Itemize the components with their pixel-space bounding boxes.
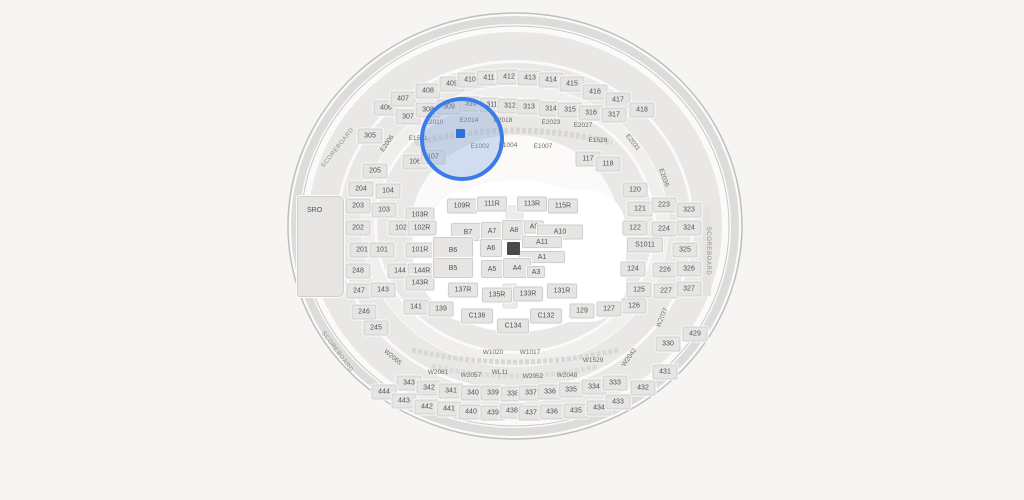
section-137r[interactable]: 137R — [448, 283, 478, 298]
section-205[interactable]: 205 — [363, 164, 388, 179]
section-227[interactable]: 227 — [654, 284, 679, 299]
section-204[interactable]: 204 — [349, 182, 374, 197]
section-120[interactable]: 120 — [623, 183, 648, 198]
section-435[interactable]: 435 — [564, 404, 589, 419]
seat-map[interactable]: SRO 406407408409410411412413414415416417… — [0, 0, 1024, 500]
scoreboard-label: SCOREBOARD — [705, 227, 711, 276]
section-127[interactable]: 127 — [597, 302, 622, 317]
section-325[interactable]: 325 — [673, 243, 698, 258]
section-118[interactable]: 118 — [596, 157, 621, 172]
section-b5[interactable]: B5 — [433, 258, 473, 278]
section-113r[interactable]: 113R — [517, 197, 547, 212]
section-121[interactable]: 121 — [628, 202, 653, 217]
aisle-label-w2057: W2057 — [461, 373, 482, 380]
aisle-label-e1007: E1007 — [534, 144, 553, 151]
section-139[interactable]: 139 — [429, 302, 454, 317]
section-124[interactable]: 124 — [621, 262, 646, 277]
section-416[interactable]: 416 — [583, 85, 608, 100]
section-333[interactable]: 333 — [603, 376, 628, 391]
section-a6[interactable]: A6 — [480, 239, 502, 257]
section-135r[interactable]: 135R — [482, 288, 512, 303]
aisle-label-w2061: W2061 — [428, 370, 449, 377]
section-143r[interactable]: 143R — [406, 276, 435, 291]
section-c132[interactable]: C132 — [530, 309, 562, 324]
section-104[interactable]: 104 — [376, 184, 401, 199]
section-101r[interactable]: 101R — [406, 243, 435, 258]
aisle-label-wl11: WL11 — [492, 370, 509, 377]
section-143[interactable]: 143 — [371, 283, 396, 298]
section-a3[interactable]: A3 — [527, 266, 545, 278]
aisle-label-w1529: W1529 — [583, 358, 604, 365]
aisle-label-e1528: E1528 — [589, 138, 608, 145]
section-324[interactable]: 324 — [677, 221, 702, 236]
aisle-label-e2027: E2027 — [574, 123, 593, 130]
section-246[interactable]: 246 — [352, 305, 377, 320]
section-408[interactable]: 408 — [416, 84, 441, 99]
aisle-label-w2048: W2048 — [557, 373, 578, 380]
section-129[interactable]: 129 — [570, 304, 595, 319]
section-317[interactable]: 317 — [602, 108, 627, 123]
section-s1011[interactable]: S1011 — [627, 238, 663, 253]
section-126[interactable]: 126 — [622, 299, 647, 314]
section-122[interactable]: 122 — [623, 221, 648, 236]
section-305[interactable]: 305 — [358, 129, 383, 144]
section-429[interactable]: 429 — [683, 327, 708, 342]
section-a7[interactable]: A7 — [481, 222, 503, 240]
section-131r[interactable]: 131R — [547, 284, 577, 299]
section-111r[interactable]: 111R — [477, 197, 507, 212]
section-c136[interactable]: C136 — [461, 309, 493, 324]
section-202[interactable]: 202 — [346, 221, 371, 236]
section-418[interactable]: 418 — [630, 103, 655, 118]
section-247[interactable]: 247 — [347, 284, 372, 299]
section-103[interactable]: 103 — [372, 203, 397, 218]
section-sro[interactable]: SRO — [297, 196, 344, 297]
section-316[interactable]: 316 — [579, 106, 604, 121]
section-407[interactable]: 407 — [391, 92, 416, 107]
aisle-label-e2023: E2023 — [542, 120, 561, 127]
section-133r[interactable]: 133R — [513, 287, 543, 302]
section-115r[interactable]: 115R — [548, 199, 578, 214]
section-203[interactable]: 203 — [346, 199, 371, 214]
section-323[interactable]: 323 — [677, 203, 702, 218]
section-101[interactable]: 101 — [370, 243, 395, 258]
section-415[interactable]: 415 — [560, 77, 585, 92]
section-443[interactable]: 443 — [392, 394, 417, 409]
section-102r[interactable]: 102R — [408, 221, 437, 236]
selected-seat-marker[interactable] — [456, 129, 465, 138]
section-223[interactable]: 223 — [652, 198, 677, 213]
stage — [507, 242, 520, 255]
section-330[interactable]: 330 — [656, 337, 681, 352]
aisle-label-w2052: W2052 — [523, 374, 544, 381]
section-335[interactable]: 335 — [559, 383, 584, 398]
section-327[interactable]: 327 — [677, 282, 702, 297]
section-a5[interactable]: A5 — [481, 260, 503, 278]
section-432[interactable]: 432 — [631, 381, 656, 396]
section-417[interactable]: 417 — [606, 93, 631, 108]
section-a11[interactable]: A11 — [522, 236, 562, 248]
section-245[interactable]: 245 — [364, 321, 389, 336]
section-248[interactable]: 248 — [346, 264, 371, 279]
section-125[interactable]: 125 — [627, 283, 652, 298]
section-436[interactable]: 436 — [540, 405, 565, 420]
section-226[interactable]: 226 — [653, 263, 678, 278]
section-326[interactable]: 326 — [677, 262, 702, 277]
section-109r[interactable]: 109R — [447, 199, 477, 214]
section-224[interactable]: 224 — [652, 222, 677, 237]
aisle-label-w1020: W1020 — [483, 350, 504, 357]
section-c134[interactable]: C134 — [497, 319, 529, 334]
section-141[interactable]: 141 — [404, 300, 429, 315]
section-431[interactable]: 431 — [653, 365, 678, 380]
section-433[interactable]: 433 — [606, 395, 631, 410]
seat-selection-magnifier[interactable] — [420, 97, 504, 181]
aisle-label-w1017: W1017 — [520, 350, 541, 357]
